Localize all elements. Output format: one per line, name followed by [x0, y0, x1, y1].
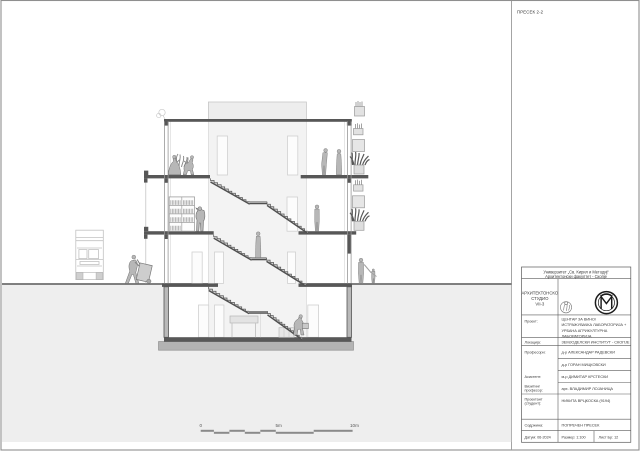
- svg-text:СТУДИО: СТУДИО: [531, 296, 549, 301]
- svg-text:ЗЕМЈОДЕЛСКИ ИНСТИТУТ - СКОПЈЕ: ЗЕМЈОДЕЛСКИ ИНСТИТУТ - СКОПЈЕ: [562, 339, 630, 344]
- svg-text:АРХИТЕКТОНСКО: АРХИТЕКТОНСКО: [521, 291, 558, 296]
- svg-text:Професори:: Професори:: [525, 351, 546, 355]
- svg-text:VII-3: VII-3: [535, 302, 544, 307]
- svg-text:ПРЕСЕК 2-2: ПРЕСЕК 2-2: [517, 10, 544, 15]
- svg-text:НИКИТА ВРЦКОСКА (9194): НИКИТА ВРЦКОСКА (9194): [562, 398, 612, 403]
- svg-text:д-р ГОРАН МИЦКОВСКИ: д-р ГОРАН МИЦКОВСКИ: [562, 362, 606, 367]
- svg-text:ПОПРЕЧЕН ПРЕСЕК: ПОПРЕЧЕН ПРЕСЕК: [562, 422, 601, 427]
- svg-text:Асистент:: Асистент:: [525, 375, 542, 379]
- svg-text:ИСТРАЖУВАЧКА ЛАБОРАТОРИЈА +: ИСТРАЖУВАЧКА ЛАБОРАТОРИЈА +: [562, 322, 627, 327]
- svg-text:Проект:: Проект:: [525, 320, 538, 324]
- svg-text:арх. ВЛАДИМИР ЛОЈАНИЦА: арх. ВЛАДИМИР ЛОЈАНИЦА: [562, 386, 614, 391]
- svg-text:ЦЕНТАР ЗА ВИНО/: ЦЕНТАР ЗА ВИНО/: [562, 316, 597, 321]
- svg-text:0: 0: [200, 423, 203, 428]
- svg-text:(студент):: (студент):: [525, 402, 542, 406]
- svg-text:Датум: 06-2024: Датум: 06-2024: [525, 436, 551, 440]
- svg-text:ЛАБОРАТОРИЈА: ЛАБОРАТОРИЈА: [562, 334, 592, 339]
- svg-text:Лист Бр: 12: Лист Бр: 12: [599, 436, 619, 440]
- svg-text:Локација:: Локација:: [525, 340, 541, 344]
- svg-text:УРБАНА АГРИКУЛТУРНА: УРБАНА АГРИКУЛТУРНА: [562, 328, 608, 333]
- svg-text:Архитектонски факултет - Скопј: Архитектонски факултет - Скопје: [545, 274, 608, 279]
- svg-text:Содржина:: Содржина:: [525, 423, 544, 427]
- svg-text:м-р ДИМИТАР КРСТЕСКИ: м-р ДИМИТАР КРСТЕСКИ: [562, 374, 609, 379]
- svg-text:Размер: 1:100: Размер: 1:100: [562, 436, 586, 440]
- svg-text:професор:: професор:: [525, 389, 543, 393]
- svg-text:д-р АЛЕКСАНДАР РАДЕВСКИ: д-р АЛЕКСАНДАР РАДЕВСКИ: [562, 350, 616, 355]
- svg-text:10m: 10m: [350, 423, 359, 428]
- svg-text:5m: 5m: [276, 423, 283, 428]
